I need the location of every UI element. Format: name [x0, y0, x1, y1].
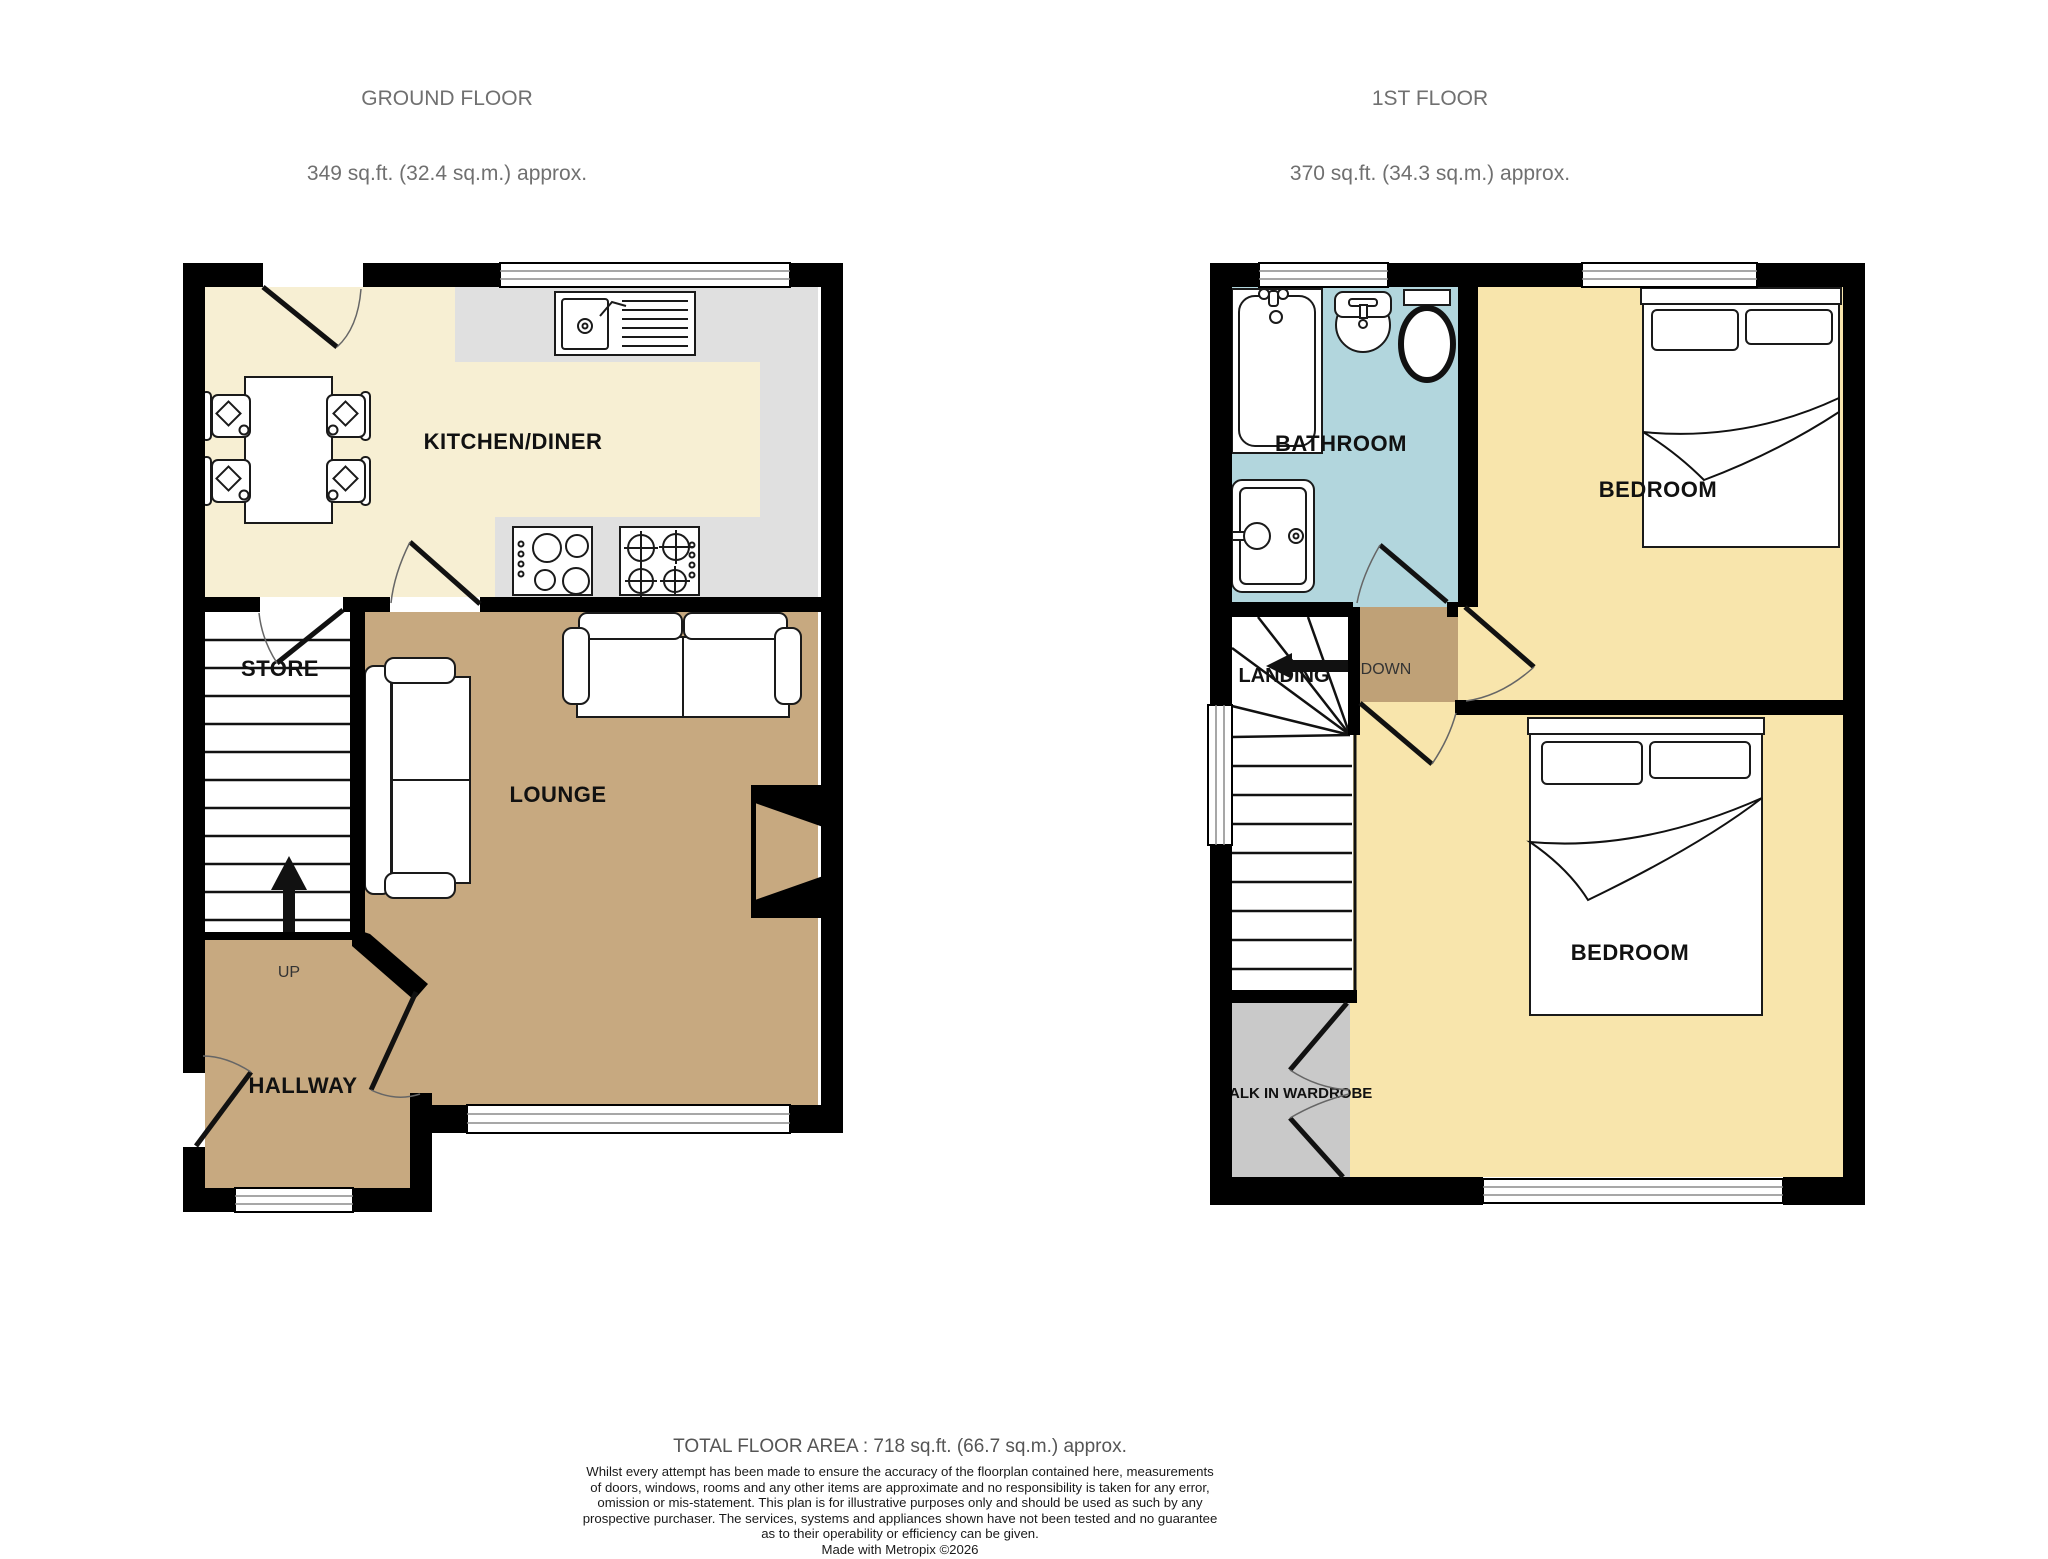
disclaimer-line: of doors, windows, rooms and any other i… [440, 1480, 1360, 1496]
lounge-label: LOUNGE [509, 782, 606, 807]
stairs-up-label: UP [278, 964, 300, 981]
landing-window [1208, 705, 1232, 845]
lounge-window [467, 1105, 790, 1133]
stairs-down-label: DOWN [1361, 661, 1412, 678]
first-floor-plan: BATHROOM BEDROOM BEDROOM LANDING DOWN WA… [1208, 263, 1865, 1205]
footer: TOTAL FLOOR AREA : 718 sq.ft. (66.7 sq.m… [440, 1436, 1360, 1558]
bathroom-label: BATHROOM [1275, 431, 1407, 456]
dining-table [245, 377, 332, 523]
bathroom-window [1259, 263, 1388, 287]
disclaimer-line: Whilst every attempt has been made to en… [440, 1464, 1360, 1480]
bedroom-bottom-window [1483, 1179, 1783, 1203]
double-bed-bottom [1528, 718, 1764, 1015]
bathtub [1232, 289, 1322, 453]
bedroom-top-label: BEDROOM [1599, 477, 1717, 502]
bedroom-top-window [1582, 263, 1757, 287]
kitchen-label: KITCHEN/DINER [424, 429, 603, 454]
hallway-label: HALLWAY [248, 1073, 357, 1098]
disclaimer-line: prospective purchaser. The services, sys… [440, 1511, 1360, 1527]
floorplan-drawing: KITCHEN/DINER STORE LOUNGE HALLWAY UP [0, 0, 2048, 1559]
gas-hob [620, 527, 699, 597]
disclaimer-line: omission or mis-statement. This plan is … [440, 1495, 1360, 1511]
chair [327, 457, 370, 505]
floorplan-page: GROUND FLOOR 349 sq.ft. (32.4 sq.m.) app… [0, 0, 2048, 1559]
double-bed-top [1641, 288, 1841, 547]
bedroom-bottom-label: BEDROOM [1571, 940, 1689, 965]
chair [202, 392, 250, 440]
toilet [1401, 290, 1453, 380]
chair [327, 392, 370, 440]
total-floor-area: TOTAL FLOOR AREA : 718 sq.ft. (66.7 sq.m… [440, 1436, 1360, 1458]
kitchen-sink [555, 292, 695, 355]
kitchen-counter-right [760, 362, 818, 522]
sofa-two-seater-vertical [365, 658, 470, 898]
metropix-credit: Made with Metropix ©2026 [440, 1542, 1360, 1558]
hallway-window [235, 1188, 353, 1212]
chair [202, 457, 250, 505]
ground-floor-plan: KITCHEN/DINER STORE LOUNGE HALLWAY UP [183, 263, 843, 1212]
landing-lobby-floor [1353, 607, 1458, 702]
sofa-two-seater [563, 613, 801, 717]
wash-basin [1335, 292, 1391, 352]
electric-hob [513, 527, 592, 595]
bathroom-sink [1232, 480, 1314, 592]
kitchen-window [500, 263, 790, 287]
disclaimer-line: as to their operability or efficiency ca… [440, 1526, 1360, 1542]
